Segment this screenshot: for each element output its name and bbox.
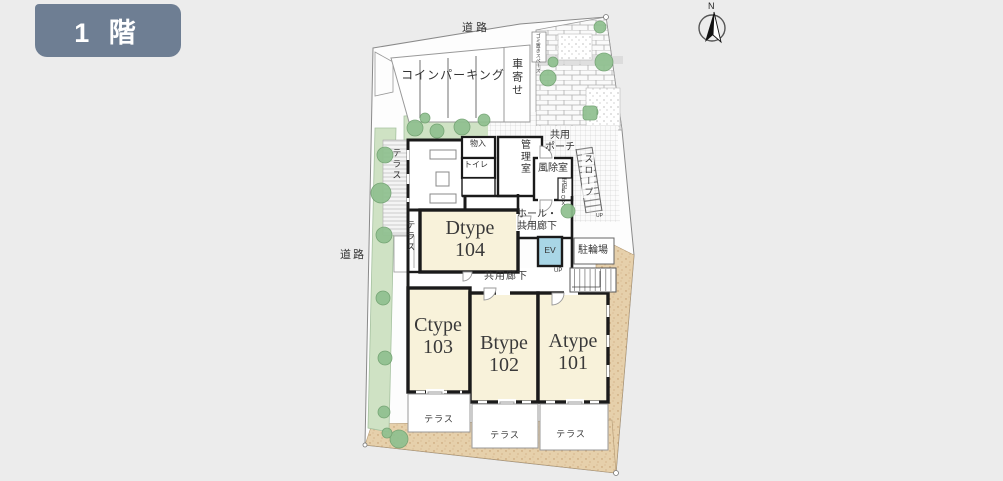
elevator-label: EV: [538, 246, 562, 256]
terrace-label-101: テラス: [551, 429, 591, 439]
slope-up-label: UP: [596, 214, 603, 220]
unit-101-number: 101: [538, 353, 608, 375]
unit-label-101: Atype 101: [538, 331, 608, 374]
road-label-top: 道路: [462, 22, 490, 35]
floor-plan-page: 1 階 道路 道路 コインパーキング 車寄せ ゴミ置きスペース 共用 ポーチ 管…: [0, 0, 1003, 481]
garbage-space-label: ゴミ置きスペース: [534, 33, 540, 73]
windbreak-room-label: 風除室: [534, 163, 572, 175]
unit-label-104: Dtype 104: [420, 218, 520, 261]
carriage-porch-label: 車寄せ: [510, 58, 523, 97]
delivery-box-label: 宅配BOX: [560, 178, 566, 207]
unit-label-103: Ctype 103: [404, 315, 472, 358]
compass-north-label: N: [708, 1, 715, 11]
bicycle-parking-label: 駐輪場: [572, 245, 614, 257]
common-porch-line2: ポーチ: [540, 142, 580, 154]
unit-104-number: 104: [420, 240, 520, 262]
floor-badge-label: 1 階: [74, 11, 142, 50]
toilet-label: トイレ: [459, 160, 493, 169]
common-porch-label: 共用 ポーチ: [540, 130, 580, 153]
terrace-label-left2: テラス: [405, 220, 415, 253]
storage-label: 物入: [461, 139, 495, 148]
stairs: [570, 268, 616, 292]
slope-label: スロープ: [582, 154, 594, 198]
road-label-left: 道路: [340, 249, 366, 262]
unit-103-number: 103: [404, 337, 472, 359]
compass-icon: [699, 12, 725, 42]
unit-103-type: Ctype: [404, 315, 472, 337]
stairs-up-label: UP: [554, 268, 562, 275]
unit-102-number: 102: [470, 355, 538, 377]
terrace-label-102: テラス: [485, 430, 525, 440]
unit-102-type: Btype: [470, 333, 538, 355]
terrace-label-left1: テラス: [391, 148, 401, 181]
common-corridor-label: 共用廊下: [484, 271, 528, 283]
common-porch-line1: 共用: [540, 130, 580, 142]
floor-badge: 1 階: [35, 4, 181, 57]
terrace-label-103: テラス: [419, 414, 459, 424]
unit-label-102: Btype 102: [470, 333, 538, 376]
manager-room-label: 管理室: [518, 139, 530, 175]
unit-104-type: Dtype: [420, 218, 520, 240]
coin-parking-label: コインパーキング: [398, 69, 508, 83]
unit-101-type: Atype: [538, 331, 608, 353]
